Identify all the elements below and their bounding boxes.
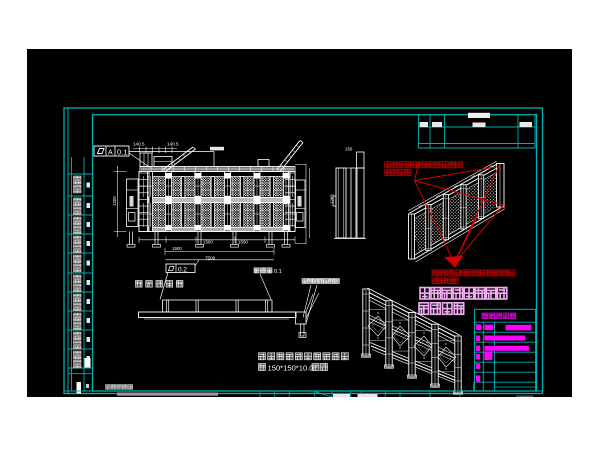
svg-text:0.2: 0.2 [178, 266, 187, 273]
svg-text:A: A [108, 149, 113, 156]
svg-text:1500: 1500 [172, 246, 182, 251]
svg-text:140.5: 140.5 [167, 142, 179, 147]
svg-text:1200: 1200 [112, 196, 117, 206]
svg-text:0.1: 0.1 [117, 148, 127, 157]
svg-text:1500: 1500 [238, 240, 248, 245]
svg-text:150*150*10.0: 150*150*10.0 [268, 363, 314, 372]
svg-text:140.5: 140.5 [133, 142, 145, 147]
svg-text:150: 150 [345, 147, 353, 152]
svg-text:0.1: 0.1 [274, 269, 282, 275]
svg-text:1500: 1500 [203, 240, 213, 245]
svg-text:1285: 1285 [330, 194, 335, 204]
